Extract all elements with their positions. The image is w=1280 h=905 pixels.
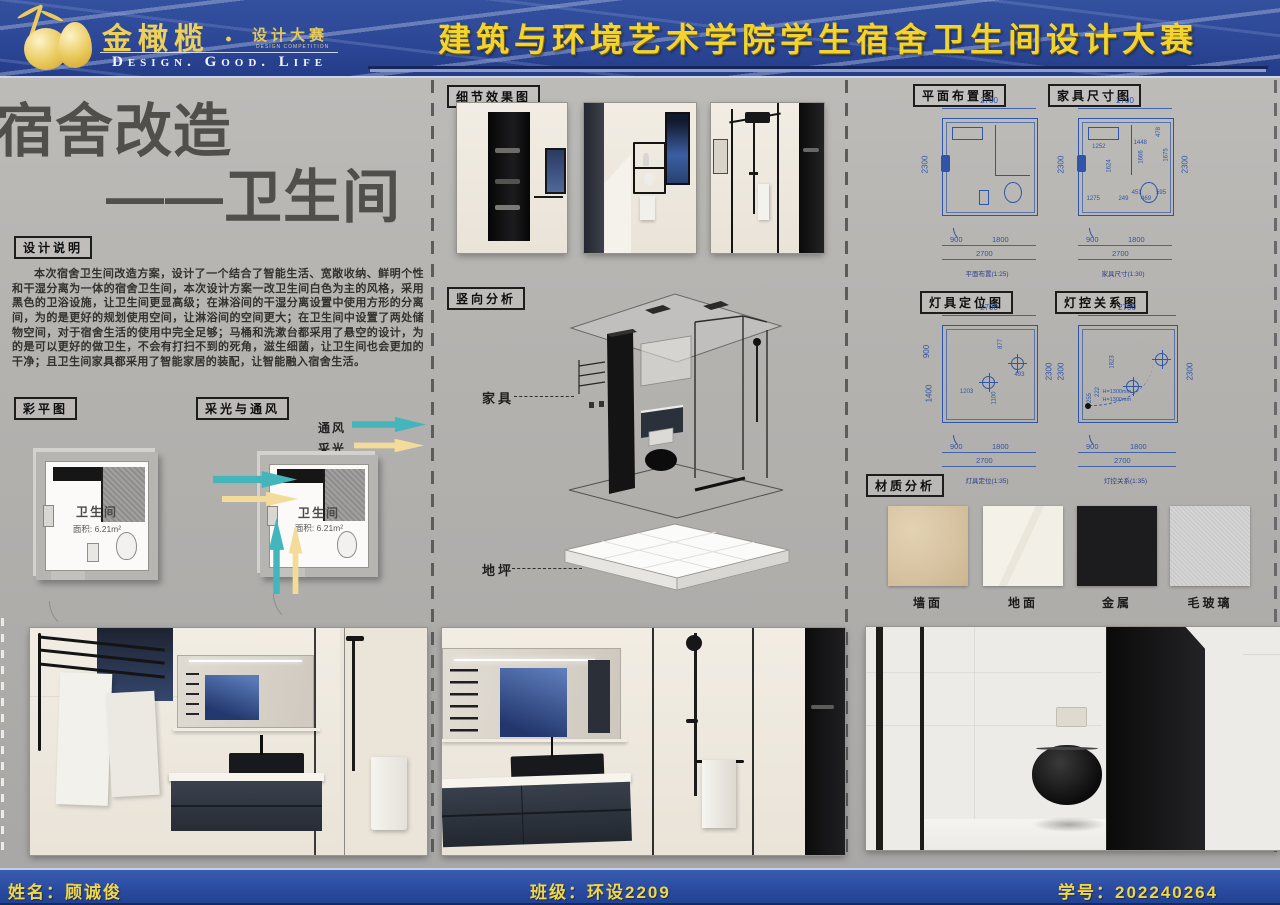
- olive-fruit-icon: [58, 22, 92, 68]
- color-floor-plan: 卫生间 面积: 6.21m²: [36, 452, 158, 580]
- glass-frame: [876, 627, 882, 850]
- detail-photo-cabinet: [457, 103, 567, 253]
- mirror-shelf: [442, 739, 627, 742]
- inner-dim: 877: [998, 339, 1004, 349]
- cad-plan-layout: 2700 2300 900 1800 2700 平面布置(1:25): [922, 96, 1052, 288]
- dim-line: [1078, 452, 1176, 453]
- mirror-shelf: [173, 728, 320, 731]
- daylight-arrow-icon: [354, 438, 424, 453]
- brand-divider: [100, 52, 338, 53]
- vanity-cabinet: [442, 781, 632, 847]
- paper-holder-towel: [640, 196, 655, 220]
- dim-b2: 1800: [992, 442, 1009, 451]
- black-shelf-rack: [633, 142, 666, 194]
- toilet-symbol: [1140, 182, 1158, 203]
- dim-top: 2700: [942, 303, 1036, 312]
- dim-top: 2700: [942, 96, 1036, 105]
- dim-b1: 900: [950, 235, 963, 244]
- basin-symbol: [979, 190, 989, 205]
- dim-b3: 2700: [1114, 456, 1131, 465]
- cad-light-control: 2700 2300 2300 H=1300mm H=1300mm 1823 22…: [1058, 303, 1193, 495]
- detail-photo-shelf: [584, 103, 696, 253]
- inner-dim: 1275: [1087, 196, 1100, 202]
- floor-callout: 地坪: [482, 560, 514, 579]
- light-symbol: [982, 376, 995, 389]
- shower-column: [753, 121, 756, 214]
- towel-on-rail: [758, 184, 768, 220]
- exploded-axon-diagram: [545, 282, 805, 622]
- vanity-cabinet: [171, 781, 322, 831]
- cad-caption: 灯控关系(1:35): [1058, 475, 1193, 485]
- control-curve: [1091, 362, 1154, 405]
- dim-left-lower: 1400: [924, 385, 933, 403]
- glass-frame: [652, 628, 654, 855]
- small-sink-symbol: [87, 543, 99, 563]
- mirror-small: [713, 139, 727, 174]
- inner-dim: 1624: [1107, 159, 1113, 172]
- towel-bar: [534, 196, 563, 198]
- vent-arrow-icon: [352, 416, 426, 433]
- dim-b3: 2700: [1112, 249, 1129, 258]
- dim-line: [942, 108, 1036, 109]
- counter-top: [169, 773, 324, 781]
- toilet-symbol: [337, 531, 357, 558]
- black-cabinet: [488, 112, 530, 241]
- drawer-seam: [171, 805, 322, 807]
- golden-olive-logo: [6, 2, 98, 74]
- shelf-reflection: [186, 673, 199, 717]
- material-swatch-frosted-glass: [1170, 506, 1250, 586]
- light-symbol: [1155, 353, 1168, 366]
- shower-head: [686, 635, 702, 651]
- washer-symbol: [1077, 155, 1085, 171]
- window-reflection: [205, 675, 259, 720]
- shower-partition: [995, 125, 997, 175]
- inner-dim: 1252: [1092, 144, 1105, 150]
- cad-caption: 家具尺寸(1:30): [1058, 268, 1188, 278]
- dim-line: [1078, 108, 1172, 109]
- door-frame-dark: [584, 103, 604, 253]
- student-name: 姓名：顾诚俊: [8, 878, 122, 903]
- dim-b2: 1800: [1128, 235, 1145, 244]
- dim-b2: 1800: [1130, 442, 1147, 451]
- faucet: [260, 735, 263, 755]
- drawer-seam: [442, 808, 631, 816]
- towel-white: [55, 673, 111, 806]
- shelf-bottle: [643, 153, 649, 166]
- render-photo-vanity-shower: [442, 628, 845, 855]
- dim-left: 2300: [1056, 363, 1065, 381]
- shower-column: [352, 639, 355, 771]
- inner-dim: 478: [1156, 127, 1162, 137]
- shower-knob: [749, 172, 758, 175]
- glass-frame: [777, 103, 779, 253]
- counter-black: [53, 467, 101, 481]
- angled-partition: [604, 154, 631, 253]
- toilet-symbol: [116, 532, 137, 560]
- brand-subtitle: 设计大赛: [252, 24, 328, 45]
- black-cabinet: [1106, 627, 1205, 850]
- column-divider: [845, 80, 848, 858]
- material-swatch-metal: [1077, 506, 1157, 586]
- room-area: 面积: 6.21m²: [45, 523, 149, 535]
- shower-partition: [1131, 125, 1133, 175]
- dim-right: 2300: [1186, 363, 1195, 381]
- inner-dim: 1100: [992, 392, 998, 405]
- sink-symbol: [952, 127, 982, 141]
- inner-dim: 1448: [1134, 140, 1147, 146]
- section-label-vertical: 竖向分析: [447, 287, 525, 310]
- dim-line: [942, 245, 1036, 246]
- window-reflection: [500, 668, 567, 737]
- inner-dim: 1675: [1164, 148, 1170, 161]
- glass-divider: [344, 628, 345, 855]
- header-banner: 金橄榄 · 设计大赛 DESIGN COMPETITION Design. Go…: [0, 0, 1280, 78]
- drawer-seam: [521, 785, 525, 844]
- glass-frame: [920, 627, 924, 850]
- student-id: 学号：202240264: [1058, 878, 1218, 903]
- dim-line: [1078, 315, 1176, 316]
- towel-white: [107, 690, 160, 797]
- inner-dim: 1823: [1110, 355, 1116, 368]
- shelf-towel-roll: [644, 173, 654, 185]
- door-swing-arc: [49, 571, 109, 631]
- material-label: 毛玻璃: [1170, 594, 1250, 611]
- material-label: 地面: [983, 594, 1063, 611]
- cad-furniture-plan: 2700 2300 2300 1252 1448 478 1675 1666 1…: [1058, 96, 1188, 288]
- shower-partition: [995, 175, 1031, 177]
- student-class: 班级：环设2209: [530, 878, 671, 903]
- dim-b1: 900: [1086, 442, 1099, 451]
- inner-dim: 249: [1118, 196, 1128, 202]
- floor-callout-line: [512, 568, 582, 569]
- black-cabinet-side: [805, 628, 845, 855]
- legend-vent-label: 通风: [318, 419, 346, 436]
- sink-symbol: [1088, 127, 1118, 141]
- shelf-line: [635, 167, 664, 169]
- footer-bar: 姓名：顾诚俊 班级：环设2209 学号：202240264: [0, 868, 1280, 905]
- dim-b2: 1800: [992, 235, 1009, 244]
- ceiling-light: [745, 112, 770, 123]
- washer-symbol: [941, 155, 949, 171]
- led-strip: [454, 659, 596, 662]
- inner-dim: 255: [1087, 393, 1093, 403]
- shower-column: [694, 633, 697, 796]
- dim-left: 2300: [920, 156, 929, 174]
- section-label-light-vent: 采光与通风: [196, 397, 289, 420]
- tile-seam: [866, 672, 1102, 673]
- shelf-items: [495, 148, 520, 153]
- towel-on-rail: [371, 757, 407, 830]
- dim-top: 2700: [1078, 303, 1176, 312]
- dim-line: [942, 259, 1036, 260]
- section-label-color-plan: 彩平图: [14, 397, 77, 420]
- light-symbol: [1011, 357, 1024, 370]
- toilet-shadow: [1032, 817, 1107, 833]
- poster-left-edge-dashes: [1, 618, 4, 858]
- door-gap: [51, 571, 85, 580]
- height-label: H=1300mm: [1103, 389, 1132, 395]
- dim-line: [1078, 245, 1172, 246]
- cad-room: 1252 1448 478 1675 1666 1624 1275 249 45…: [1078, 118, 1174, 216]
- window-small: [545, 148, 566, 194]
- material-label: 墙面: [888, 594, 968, 611]
- dim-right: 2300: [1181, 156, 1190, 174]
- poster-title-line2: ——卫生间: [106, 150, 401, 234]
- inner-dim: 1203: [960, 389, 973, 395]
- dim-right: 2300: [1045, 363, 1054, 381]
- dim-line: [1078, 259, 1172, 260]
- brand-slogan: Design. Good. Life: [112, 54, 327, 71]
- shelf-items: [811, 705, 834, 709]
- inner-dim: 595: [1156, 190, 1166, 196]
- material-swatch-wall: [888, 506, 968, 586]
- glass-frame: [731, 109, 733, 253]
- inner-dim: 451: [1132, 190, 1142, 196]
- towel-on-rail: [702, 760, 736, 828]
- height-label: H=1300mm: [1103, 397, 1132, 403]
- cad-caption: 平面布置(1:25): [922, 268, 1052, 278]
- room-name: 卫生间: [45, 503, 149, 520]
- light-symbol: [1126, 380, 1139, 393]
- sink-black: [229, 753, 304, 776]
- mirror: [442, 648, 621, 741]
- render-photo-toilet: [866, 627, 1280, 850]
- dim-b1: 900: [1086, 235, 1099, 244]
- led-strip: [189, 660, 302, 662]
- render-photo-vanity-left: [30, 628, 427, 855]
- material-swatch-floor: [983, 506, 1063, 586]
- inner-dim: 1666: [1139, 150, 1145, 163]
- inner-dim: 469: [1141, 196, 1151, 202]
- tile-seam: [1243, 654, 1280, 655]
- room-area: 面积: 6.21m²: [269, 522, 369, 534]
- shelf-items: [495, 205, 520, 210]
- cad-room: 877 493 1203 1100: [942, 325, 1038, 423]
- dim-b3: 2700: [976, 249, 993, 258]
- black-cabinet-side: [799, 103, 824, 253]
- dim-line: [942, 452, 1036, 453]
- shower-knob: [686, 719, 698, 723]
- window-trees: [665, 112, 690, 185]
- furniture-callout: 家具: [482, 388, 514, 407]
- olive-leaf-icon: [40, 9, 64, 22]
- cad-light-position: 2700 900 1400 2300 877 493 1203 1100 900…: [922, 303, 1052, 495]
- material-label: 金属: [1077, 594, 1157, 611]
- brand-subtitle-en: DESIGN COMPETITION: [256, 44, 329, 50]
- dim-line: [1078, 466, 1176, 467]
- detail-photo-shower: [711, 103, 824, 253]
- competition-title: 建筑与环境艺术学院学生宿舍卫生间设计大赛: [368, 13, 1268, 69]
- toilet-symbol: [1004, 182, 1022, 203]
- shelf-items: [803, 148, 819, 152]
- design-notes-text: 本次宿舍卫生间改造方案，设计了一个结合了智能生活、宽敞收纳、鲜明个性和干湿分离为…: [12, 267, 424, 369]
- column-divider: [431, 80, 434, 858]
- room-name: 卫生间: [269, 504, 369, 521]
- glass-frame: [752, 628, 754, 855]
- flush-plate: [1056, 707, 1087, 727]
- cad-room: H=1300mm H=1300mm 1823 222 255: [1078, 325, 1178, 423]
- dim-top: 2700: [1078, 96, 1172, 105]
- section-label-materials: 材质分析: [866, 474, 944, 497]
- mirror: [177, 655, 314, 727]
- dim-left: 2300: [1056, 156, 1065, 174]
- switch-dot: [1085, 403, 1091, 409]
- dim-left-upper: 900: [922, 345, 931, 358]
- dim-line: [942, 466, 1036, 467]
- dim-b1: 900: [950, 442, 963, 451]
- cad-room: [942, 118, 1038, 216]
- inner-dim: 493: [1014, 372, 1024, 378]
- dim-line: [942, 315, 1036, 316]
- furniture-callout-line: [514, 396, 574, 397]
- cabinet-reflection: [588, 660, 609, 733]
- shower-head: [346, 636, 364, 641]
- faucet: [551, 737, 554, 757]
- shelf-reflection: [450, 669, 478, 733]
- poster-root: 金橄榄 · 设计大赛 DESIGN COMPETITION Design. Go…: [0, 0, 1280, 905]
- inner-dim: 222: [1095, 387, 1101, 397]
- tile-seam: [974, 627, 975, 850]
- dim-b3: 2700: [976, 456, 993, 465]
- section-label-design-notes: 设计说明: [14, 236, 92, 259]
- toilet-black: [1032, 745, 1102, 805]
- shelf-items: [495, 179, 520, 184]
